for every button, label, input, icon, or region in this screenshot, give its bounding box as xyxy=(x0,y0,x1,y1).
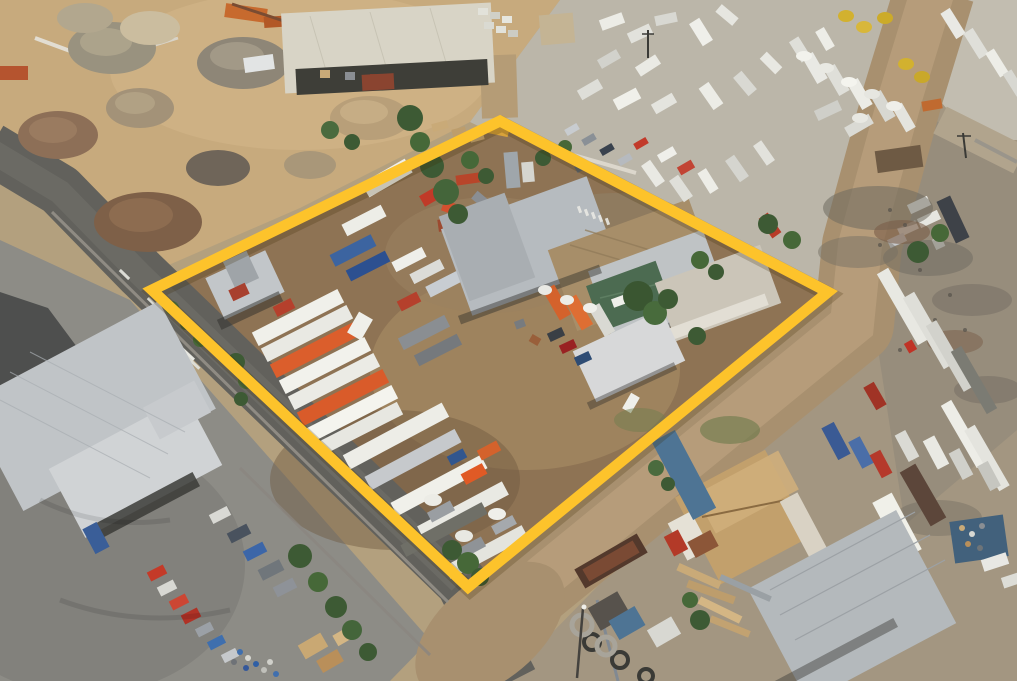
dumpster-junk xyxy=(959,525,965,531)
mixer-drum-yellow xyxy=(898,58,914,70)
bag-pallet xyxy=(502,16,512,23)
driveway-north xyxy=(498,55,500,118)
brown-mound-cap xyxy=(109,198,173,232)
light-pole-lamp xyxy=(582,605,587,610)
grass-patch xyxy=(700,416,760,444)
junk-debris xyxy=(878,243,882,247)
aerial-photo: Aerial drone photo of an industrial truc… xyxy=(0,0,1017,681)
dirt-mound-cap xyxy=(115,92,155,114)
tree xyxy=(783,231,801,249)
tree xyxy=(691,251,709,269)
mixer-drum xyxy=(852,113,868,123)
rust-patch xyxy=(874,220,930,244)
junk-debris xyxy=(948,293,952,297)
bush xyxy=(661,477,675,491)
bag-pallet xyxy=(508,30,518,37)
mixer-drum xyxy=(488,508,506,520)
tan-mound-cap xyxy=(340,100,388,124)
mixer-drum-yellow xyxy=(877,12,893,24)
mixer-drum xyxy=(796,51,812,61)
tree xyxy=(708,264,724,280)
tree xyxy=(397,105,423,131)
tree xyxy=(288,544,312,568)
tree xyxy=(688,327,706,345)
bay-stock xyxy=(320,70,330,78)
barrel xyxy=(267,659,273,665)
tree xyxy=(410,132,430,152)
mixer-drum-yellow xyxy=(856,21,872,33)
mixer-drum xyxy=(424,494,442,506)
mixer-drum xyxy=(538,285,552,295)
junk-patch xyxy=(883,240,973,276)
barrel xyxy=(273,671,279,677)
tree xyxy=(907,241,929,263)
tree xyxy=(448,204,468,224)
tree xyxy=(433,179,459,205)
bag-pallet xyxy=(490,12,500,19)
barrel xyxy=(231,659,237,665)
barrel xyxy=(253,661,259,667)
tree xyxy=(325,596,347,618)
barrel xyxy=(261,667,267,673)
mixer-drum xyxy=(560,295,574,305)
mixer-drum xyxy=(841,77,857,87)
tree xyxy=(321,121,339,139)
junk-debris xyxy=(903,223,907,227)
mixer-drum xyxy=(818,63,834,73)
dumpster-junk xyxy=(965,541,971,547)
bush xyxy=(682,592,698,608)
bush xyxy=(690,610,710,630)
bush xyxy=(234,392,248,406)
tree xyxy=(658,289,678,309)
white-tank xyxy=(521,162,535,183)
junk-debris xyxy=(898,348,902,352)
mixer-drum xyxy=(455,530,473,542)
tree xyxy=(461,151,479,169)
dumpster-junk xyxy=(979,523,985,529)
tree xyxy=(344,134,360,150)
tree xyxy=(758,214,778,234)
mixer-drum-yellow xyxy=(914,71,930,83)
bay-stock xyxy=(345,72,355,80)
tree xyxy=(478,168,494,184)
mixer-drum xyxy=(583,303,597,313)
tree xyxy=(931,224,949,242)
mixer-drum xyxy=(864,89,880,99)
tree xyxy=(308,572,328,592)
mixer-drum-yellow xyxy=(838,10,854,22)
dirt-mound xyxy=(284,151,336,179)
redsoil-mound-cap xyxy=(29,117,77,143)
junk-debris xyxy=(888,208,892,212)
mixer-drum xyxy=(886,101,902,111)
tan-building xyxy=(539,13,575,46)
gravel-mound xyxy=(57,3,113,33)
dark-mound xyxy=(186,150,250,186)
junk-debris xyxy=(963,328,967,332)
barrel xyxy=(237,649,243,655)
bush xyxy=(648,460,664,476)
barrel xyxy=(245,655,251,661)
bag-pallet xyxy=(496,26,506,33)
tree xyxy=(359,643,377,661)
scene-svg xyxy=(0,0,1017,681)
orange-container xyxy=(0,66,28,80)
barrel xyxy=(243,665,249,671)
junk-patch xyxy=(932,284,1012,316)
dumpster-junk xyxy=(969,531,975,537)
junk-debris xyxy=(918,268,922,272)
dumpster-junk xyxy=(977,545,983,551)
sand-mound xyxy=(120,11,180,45)
bag-pallet xyxy=(478,8,488,15)
red-roof-section xyxy=(362,73,395,91)
bag-pallet xyxy=(484,22,494,29)
tree xyxy=(342,620,362,640)
